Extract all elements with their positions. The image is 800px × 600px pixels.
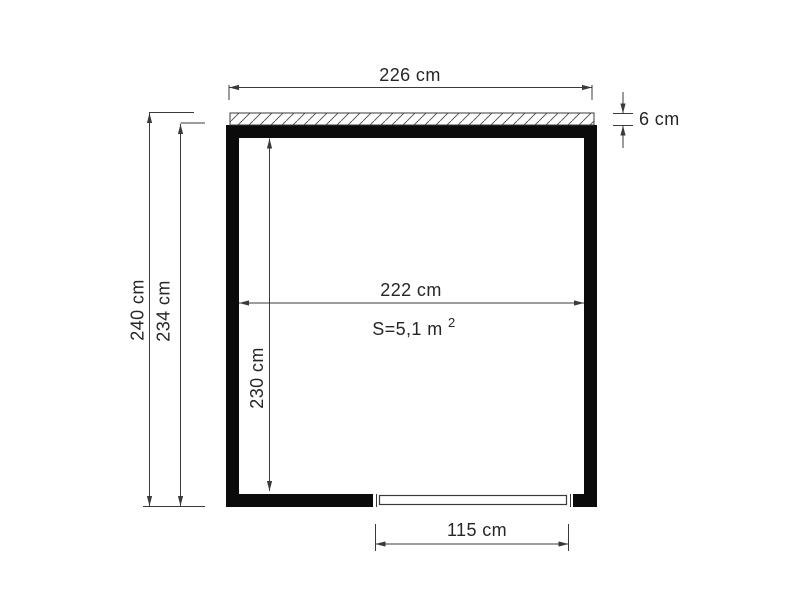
wall-bottom-right [573, 494, 597, 507]
floor-plan-canvas: 226 cm 6 cm 240 cm 234 cm 222 cm S=5,1 m… [0, 0, 800, 600]
door-width-label: 115 cm [447, 520, 507, 540]
floor-plan-svg: 226 cm 6 cm 240 cm 234 cm 222 cm S=5,1 m… [0, 0, 800, 600]
inner-height-label: 230 cm [247, 347, 267, 408]
wall-top [226, 125, 597, 138]
area-label-exponent: 2 [448, 315, 456, 330]
door-panel [380, 496, 567, 505]
inner-width-label: 222 cm [380, 280, 441, 300]
wall-right [584, 125, 597, 507]
dim-roof-thickness [613, 92, 633, 148]
area-label: S=5,1 m 2 [372, 315, 455, 339]
wall-height-label: 234 cm [154, 280, 174, 341]
roof-thickness-label: 6 cm [639, 109, 680, 129]
walls [226, 125, 597, 507]
outer-width-label: 226 cm [379, 65, 440, 85]
dim-wall-height [143, 123, 205, 507]
area-label-base: S=5,1 m [372, 319, 442, 339]
total-height-label: 240 cm [128, 279, 148, 340]
roof-hatch-strip [230, 113, 594, 125]
wall-bottom-left [226, 494, 373, 507]
door [377, 494, 571, 507]
wall-left [226, 125, 239, 507]
dim-outer-width [229, 85, 592, 100]
dimension-lines [143, 85, 633, 551]
